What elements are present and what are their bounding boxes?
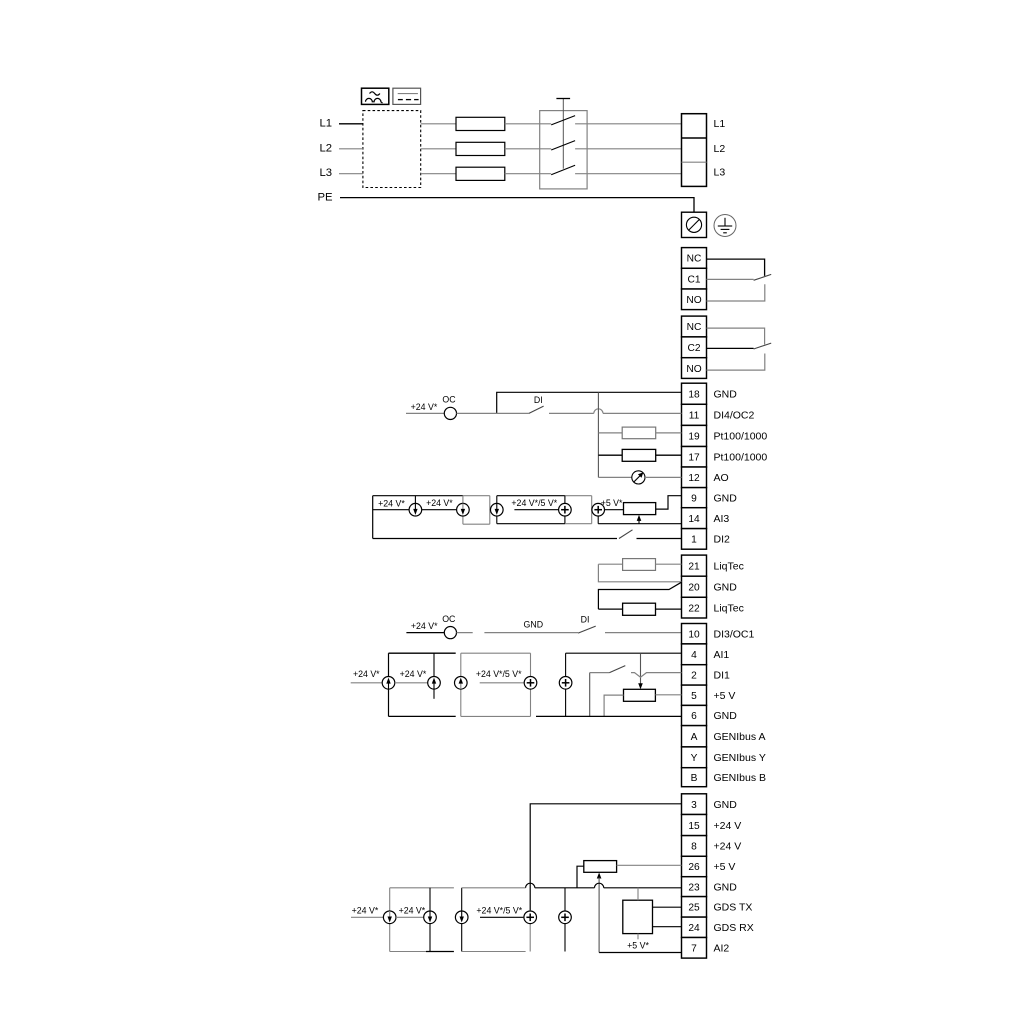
svg-text:1: 1 (691, 535, 697, 546)
svg-text:GND: GND (714, 881, 738, 893)
svg-text:5: 5 (691, 691, 697, 702)
svg-text:DI3/OC1: DI3/OC1 (714, 628, 755, 640)
svg-text:26: 26 (688, 862, 700, 873)
svg-text:LiqTec: LiqTec (714, 560, 744, 572)
svg-text:15: 15 (688, 821, 700, 832)
svg-text:NC: NC (687, 254, 702, 265)
svg-text:+24 V*: +24 V* (426, 498, 453, 508)
svg-text:Y: Y (691, 753, 698, 764)
svg-text:12: 12 (688, 473, 700, 484)
svg-text:C1: C1 (687, 274, 700, 285)
svg-text:+5 V: +5 V (714, 690, 736, 702)
svg-text:L2: L2 (320, 142, 333, 154)
svg-text:3: 3 (691, 800, 697, 811)
svg-text:DI: DI (534, 395, 543, 405)
svg-text:NO: NO (686, 364, 701, 375)
svg-text:OC: OC (442, 394, 456, 404)
svg-text:GND: GND (524, 620, 544, 630)
svg-text:+24 V*: +24 V* (378, 499, 405, 509)
svg-text:DI: DI (581, 615, 590, 625)
svg-text:4: 4 (691, 650, 697, 661)
svg-text:GND: GND (714, 581, 738, 593)
svg-text:OC: OC (442, 614, 456, 624)
svg-text:GND: GND (714, 799, 738, 811)
svg-text:GENIbus A: GENIbus A (714, 731, 766, 743)
svg-text:19: 19 (688, 432, 700, 443)
svg-text:+24 V*: +24 V* (352, 906, 379, 916)
svg-text:AI2: AI2 (714, 943, 730, 955)
svg-text:25: 25 (688, 903, 700, 914)
svg-text:22: 22 (688, 603, 700, 614)
svg-text:14: 14 (688, 514, 700, 525)
svg-text:Pt100/1000: Pt100/1000 (714, 431, 768, 443)
svg-text:+24 V*: +24 V* (400, 669, 427, 679)
svg-text:C2: C2 (687, 343, 700, 354)
svg-text:L2: L2 (714, 143, 726, 155)
svg-text:B: B (691, 773, 698, 784)
svg-text:21: 21 (688, 561, 700, 572)
svg-text:+24 V*: +24 V* (353, 669, 380, 679)
svg-text:AO: AO (714, 472, 729, 484)
svg-text:L3: L3 (320, 167, 333, 179)
svg-text:11: 11 (689, 411, 700, 422)
svg-text:L1: L1 (714, 118, 726, 130)
svg-text:9: 9 (691, 493, 697, 504)
svg-text:24: 24 (688, 923, 700, 934)
svg-text:NC: NC (687, 322, 702, 333)
svg-text:+24 V*/5 V*: +24 V*/5 V* (476, 669, 522, 679)
svg-text:A: A (691, 732, 698, 743)
svg-text:+5 V*: +5 V* (627, 940, 649, 950)
svg-text:8: 8 (691, 842, 697, 853)
svg-text:+24 V: +24 V (714, 841, 742, 853)
svg-text:2: 2 (691, 671, 697, 682)
svg-text:10: 10 (688, 629, 700, 640)
svg-text:GND: GND (714, 388, 738, 400)
svg-text:L3: L3 (714, 167, 726, 179)
svg-text:GENIbus Y: GENIbus Y (714, 752, 766, 764)
svg-text:+24 V*/5 V*: +24 V*/5 V* (476, 905, 522, 915)
svg-text:AI1: AI1 (714, 649, 730, 661)
svg-text:17: 17 (688, 452, 700, 463)
svg-text:PE: PE (318, 191, 334, 203)
svg-text:+24 V: +24 V (714, 820, 742, 832)
svg-text:23: 23 (688, 882, 700, 893)
svg-text:GND: GND (714, 710, 738, 722)
svg-text:L1: L1 (320, 117, 333, 129)
svg-text:Pt100/1000: Pt100/1000 (714, 451, 768, 463)
svg-text:+5 V*: +5 V* (601, 498, 623, 508)
svg-text:DI4/OC2: DI4/OC2 (714, 410, 755, 422)
svg-text:18: 18 (688, 389, 700, 400)
svg-text:GDS RX: GDS RX (714, 922, 754, 934)
svg-text:+24 V*: +24 V* (411, 402, 438, 412)
svg-text:20: 20 (688, 582, 700, 593)
svg-text:NO: NO (686, 295, 701, 306)
svg-text:AI3: AI3 (714, 513, 730, 525)
svg-text:+24 V*: +24 V* (399, 906, 426, 916)
svg-text:LiqTec: LiqTec (714, 602, 744, 614)
svg-text:GDS TX: GDS TX (714, 902, 753, 914)
svg-text:7: 7 (691, 944, 697, 955)
svg-text:+24 V*: +24 V* (411, 621, 438, 631)
svg-text:+24 V*/5 V*: +24 V*/5 V* (511, 498, 557, 508)
svg-text:GENIbus B: GENIbus B (714, 772, 767, 784)
svg-text:GND: GND (714, 492, 738, 504)
svg-text:6: 6 (691, 711, 697, 722)
svg-text:DI2: DI2 (714, 534, 731, 546)
svg-text:DI1: DI1 (714, 670, 731, 682)
svg-text:+5 V: +5 V (714, 861, 736, 873)
